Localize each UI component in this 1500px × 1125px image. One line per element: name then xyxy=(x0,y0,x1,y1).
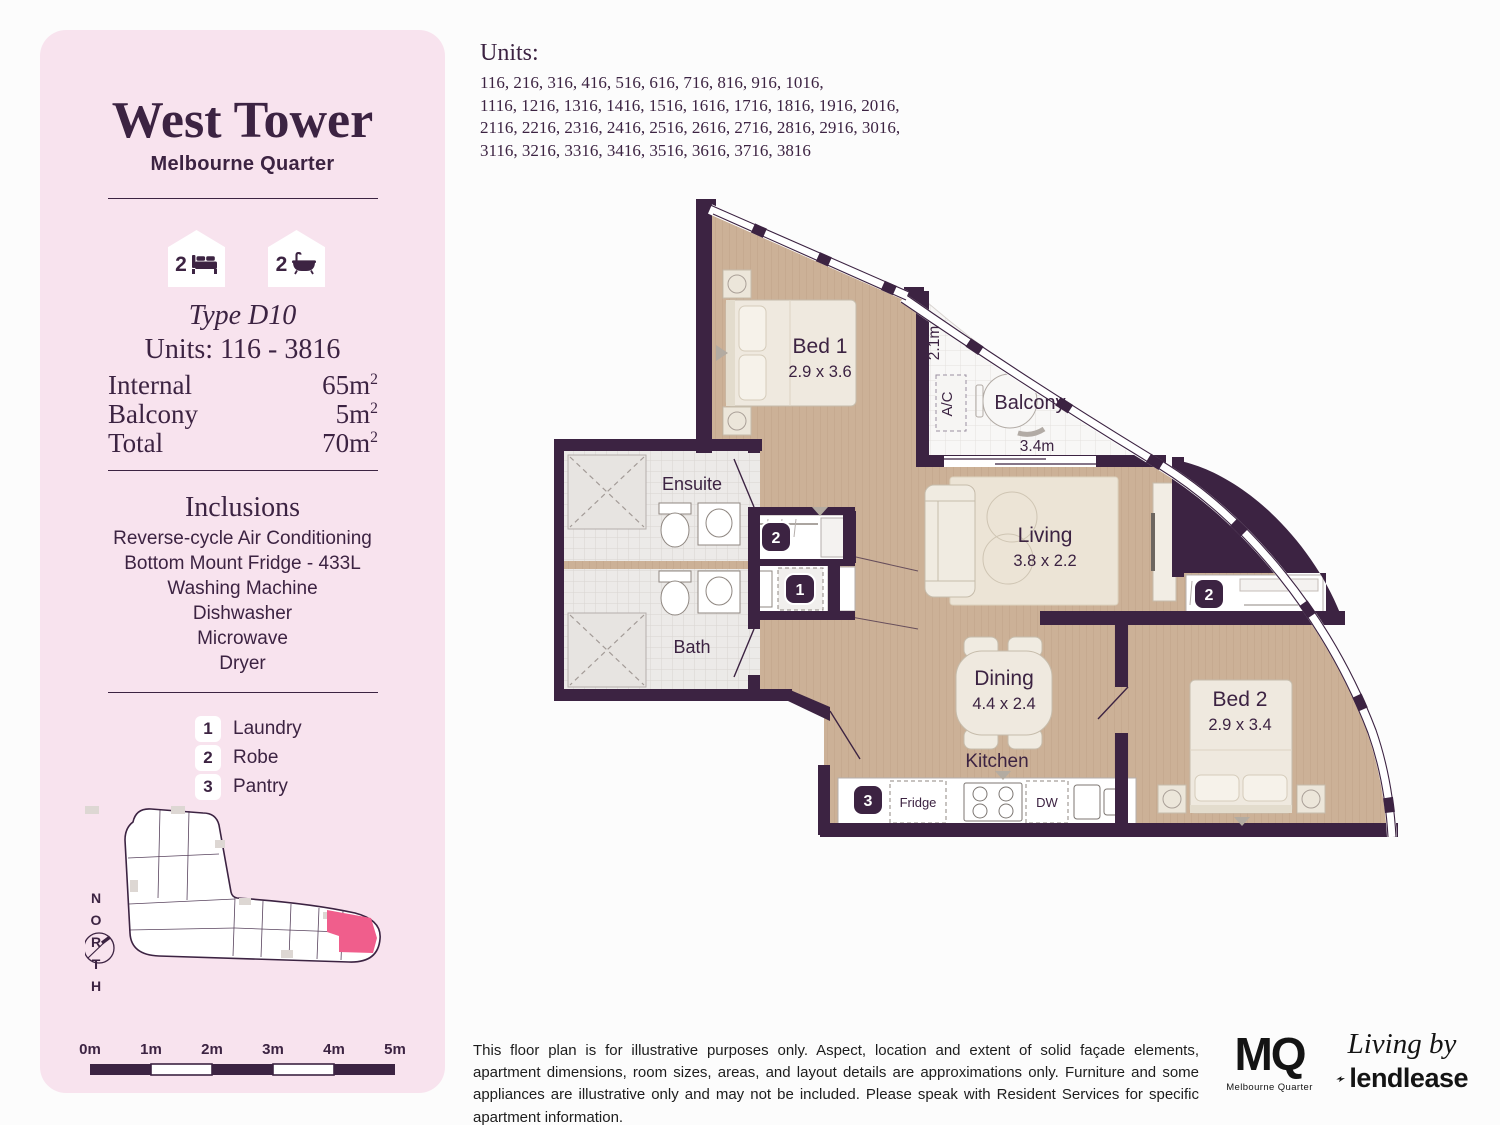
compass-icon xyxy=(85,933,114,963)
living-dims: 3.8 x 2.2 xyxy=(1013,552,1076,570)
scale-labels: 0m 1m 2m 3m 4m 5m xyxy=(79,1041,406,1058)
scale-segments xyxy=(90,1064,395,1075)
units-line: 1116, 1216, 1316, 1416, 1516, 1616, 1716… xyxy=(480,95,960,118)
ensuite-label: Ensuite xyxy=(662,474,722,494)
bed2-dims: 2.9 x 3.4 xyxy=(1208,716,1271,734)
dw-label: DW xyxy=(1036,795,1058,810)
bath-icon xyxy=(291,252,317,275)
legend-badge-3: 3 xyxy=(195,774,221,800)
site-minimap xyxy=(85,800,415,1000)
stat-label: Internal xyxy=(108,370,192,401)
pantry-badge: 3 xyxy=(853,785,883,815)
robe-badge-1: 2 xyxy=(761,522,791,552)
svg-text:4m: 4m xyxy=(323,1041,345,1058)
svg-text:2m: 2m xyxy=(201,1041,223,1058)
living-label: Living xyxy=(1018,524,1073,547)
balcony-sliding-door xyxy=(944,456,1096,467)
legend-label: Pantry xyxy=(233,776,288,798)
inclusion-item: Microwave xyxy=(40,626,445,651)
page-title: West Tower xyxy=(40,95,445,147)
bath-basin xyxy=(698,571,740,613)
bed1-label: Bed 1 xyxy=(793,335,848,358)
ensuite-toilet xyxy=(659,503,691,547)
bed-icon xyxy=(191,254,218,275)
bath-count: 2 xyxy=(276,255,288,275)
units-line: 2116, 2216, 2316, 2416, 2516, 2616, 2716… xyxy=(480,117,960,140)
lendlease-flag-icon xyxy=(1336,1066,1345,1092)
units-list: 116, 216, 316, 416, 516, 616, 716, 816, … xyxy=(480,72,960,162)
inclusions-list: Reverse-cycle Air Conditioning Bottom Mo… xyxy=(40,526,445,676)
dining-set xyxy=(956,637,1052,749)
lendlease-logo: Living by lendlease xyxy=(1336,1028,1468,1094)
inclusion-item: Reverse-cycle Air Conditioning xyxy=(40,526,445,551)
bed-count: 2 xyxy=(175,255,187,275)
inclusions-title: Inclusions xyxy=(40,492,445,524)
type-label: Type D10 xyxy=(40,300,445,332)
dining-table xyxy=(956,651,1052,735)
inclusion-item: Washing Machine xyxy=(40,576,445,601)
legend-badge-2: 2 xyxy=(195,745,221,771)
ensuite-basin xyxy=(698,503,740,545)
mq-logo: MQ Melbourne Quarter xyxy=(1222,1032,1317,1093)
inclusion-item: Dryer xyxy=(40,651,445,676)
bath-toilet xyxy=(659,571,691,615)
bed2-label: Bed 2 xyxy=(1213,688,1268,711)
svg-text:3: 3 xyxy=(864,793,873,810)
robe-badge-2: 2 xyxy=(1194,579,1224,609)
stat-balcony: Balcony 5m2 xyxy=(108,399,378,429)
units-heading: Units: xyxy=(480,40,539,67)
sofa xyxy=(925,485,975,597)
stat-value: 70m2 xyxy=(322,428,378,459)
inclusion-item: Bottom Mount Fridge - 433L xyxy=(40,551,445,576)
legend-label: Robe xyxy=(233,747,278,769)
ac-label: A/C xyxy=(939,391,956,416)
divider xyxy=(108,692,378,693)
kitchen-label: Kitchen xyxy=(965,751,1028,772)
svg-text:2: 2 xyxy=(772,530,781,547)
dining-dims: 4.4 x 2.4 xyxy=(972,695,1035,713)
bed1-dims: 2.9 x 3.6 xyxy=(788,363,851,381)
dining-label: Dining xyxy=(974,667,1034,690)
legend-badge-1: 1 xyxy=(195,716,221,742)
stat-value: 5m2 xyxy=(336,399,378,430)
inclusion-item: Dishwasher xyxy=(40,601,445,626)
legend-label: Laundry xyxy=(233,718,302,740)
page-subtitle: Melbourne Quarter xyxy=(40,153,445,176)
ensuite-room xyxy=(560,451,760,561)
floor-plan: 1 2 2 3 Bed 1 2.9 x 3.6 Living 3.8 x 2.2… xyxy=(540,185,1420,875)
scale-bar: 0m 1m 2m 3m 4m 5m xyxy=(78,1040,408,1086)
divider xyxy=(108,198,378,199)
stat-label: Total xyxy=(108,428,163,459)
svg-text:0m: 0m xyxy=(79,1041,101,1058)
fridge-label: Fridge xyxy=(900,795,937,810)
legend-laundry: 1 Laundry xyxy=(0,716,405,742)
laundry-badge: 1 xyxy=(785,574,815,604)
disclaimer-text: This floor plan is for illustrative purp… xyxy=(473,1040,1199,1125)
svg-text:2: 2 xyxy=(1205,587,1214,604)
units-range: Units: 116 - 3816 xyxy=(40,334,445,366)
mq-logo-sub: Melbourne Quarter xyxy=(1222,1082,1317,1093)
svg-text:5m: 5m xyxy=(384,1041,406,1058)
svg-text:1m: 1m xyxy=(140,1041,162,1058)
units-line: 116, 216, 316, 416, 516, 616, 716, 816, … xyxy=(480,72,960,95)
bath-label: Bath xyxy=(673,637,710,657)
legend-pantry: 3 Pantry xyxy=(0,774,405,800)
balcony-width-dim: 3.4m xyxy=(1020,438,1054,455)
bath-room xyxy=(560,569,760,691)
lendlease-brand: lendlease xyxy=(1349,1063,1468,1094)
units-line: 3116, 3216, 3316, 3416, 3516, 3616, 3716… xyxy=(480,140,960,163)
lendlease-tagline: Living by xyxy=(1336,1028,1468,1061)
stat-internal: Internal 65m2 xyxy=(108,370,378,400)
stat-label: Balcony xyxy=(108,399,198,430)
svg-text:1: 1 xyxy=(796,582,805,599)
balcony-label: Balcony xyxy=(994,392,1065,414)
mq-logo-mark: MQ xyxy=(1222,1032,1317,1076)
svg-text:3m: 3m xyxy=(262,1041,284,1058)
floorplan-page: West Tower Melbourne Quarter 2 2 Type D1… xyxy=(0,0,1500,1125)
legend-robe: 2 Robe xyxy=(0,745,405,771)
balcony-depth-dim: 2.1m xyxy=(926,326,943,360)
divider xyxy=(108,470,378,471)
stat-value: 65m2 xyxy=(322,370,378,401)
stat-total: Total 70m2 xyxy=(108,428,378,458)
